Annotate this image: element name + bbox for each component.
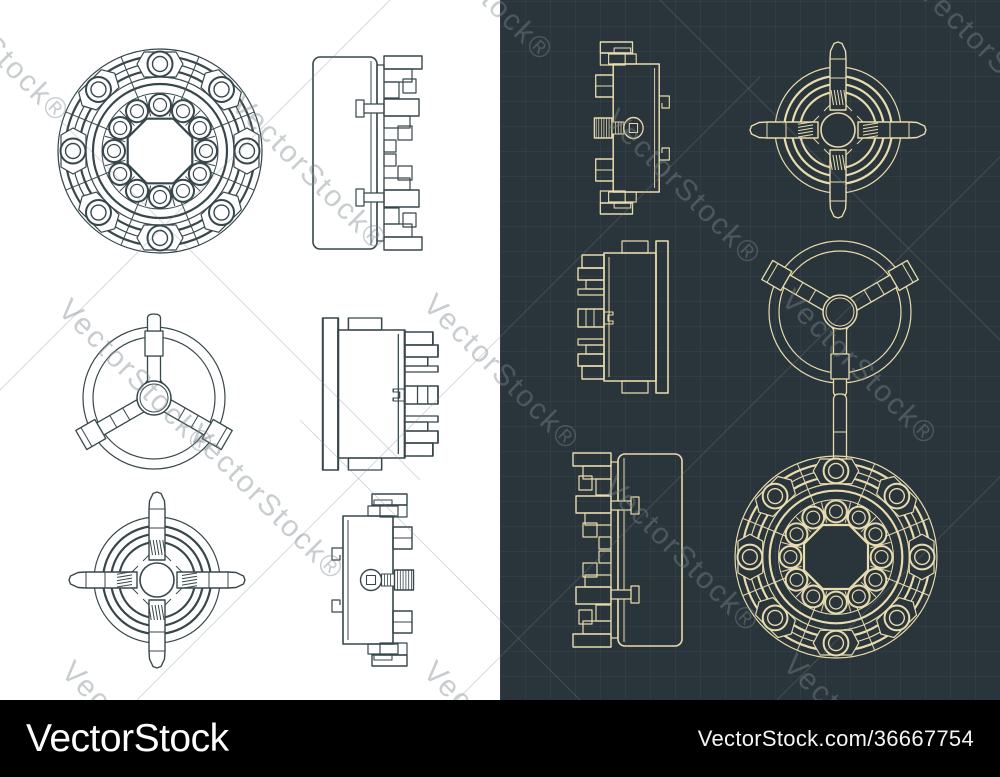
blueprint-cross-chuck-front [750, 42, 926, 218]
blueprint-3jaw-chuck-front [762, 241, 918, 470]
technical-drawings [0, 0, 1000, 777]
sketch-3jaw-chuck-front [76, 314, 232, 469]
sketch-cross-chuck-front [69, 492, 245, 668]
sketch-chuck-side-view-top [313, 56, 422, 250]
sketch-multibolt-chuck-front [58, 49, 262, 253]
footer-brand: VectorStock [26, 717, 229, 761]
footer-image-id: VectorStock.com/36667754 [698, 726, 974, 752]
sketch-chuck-side-view-bottom-with-key [332, 494, 414, 666]
blueprint-chuck-side-view-middle [578, 241, 668, 393]
stock-image-preview: VectorStock®VectorStock®VectorStock®Vect… [0, 0, 1000, 777]
sketch-chuck-side-view-middle [323, 318, 438, 470]
blueprint-chuck-side-view-bottom [573, 453, 682, 647]
footer-bar: VectorStock VectorStock.com/36667754 [0, 700, 1000, 777]
blueprint-multibolt-chuck-front [735, 456, 937, 658]
blueprint-chuck-side-view-top-with-key [594, 42, 669, 214]
